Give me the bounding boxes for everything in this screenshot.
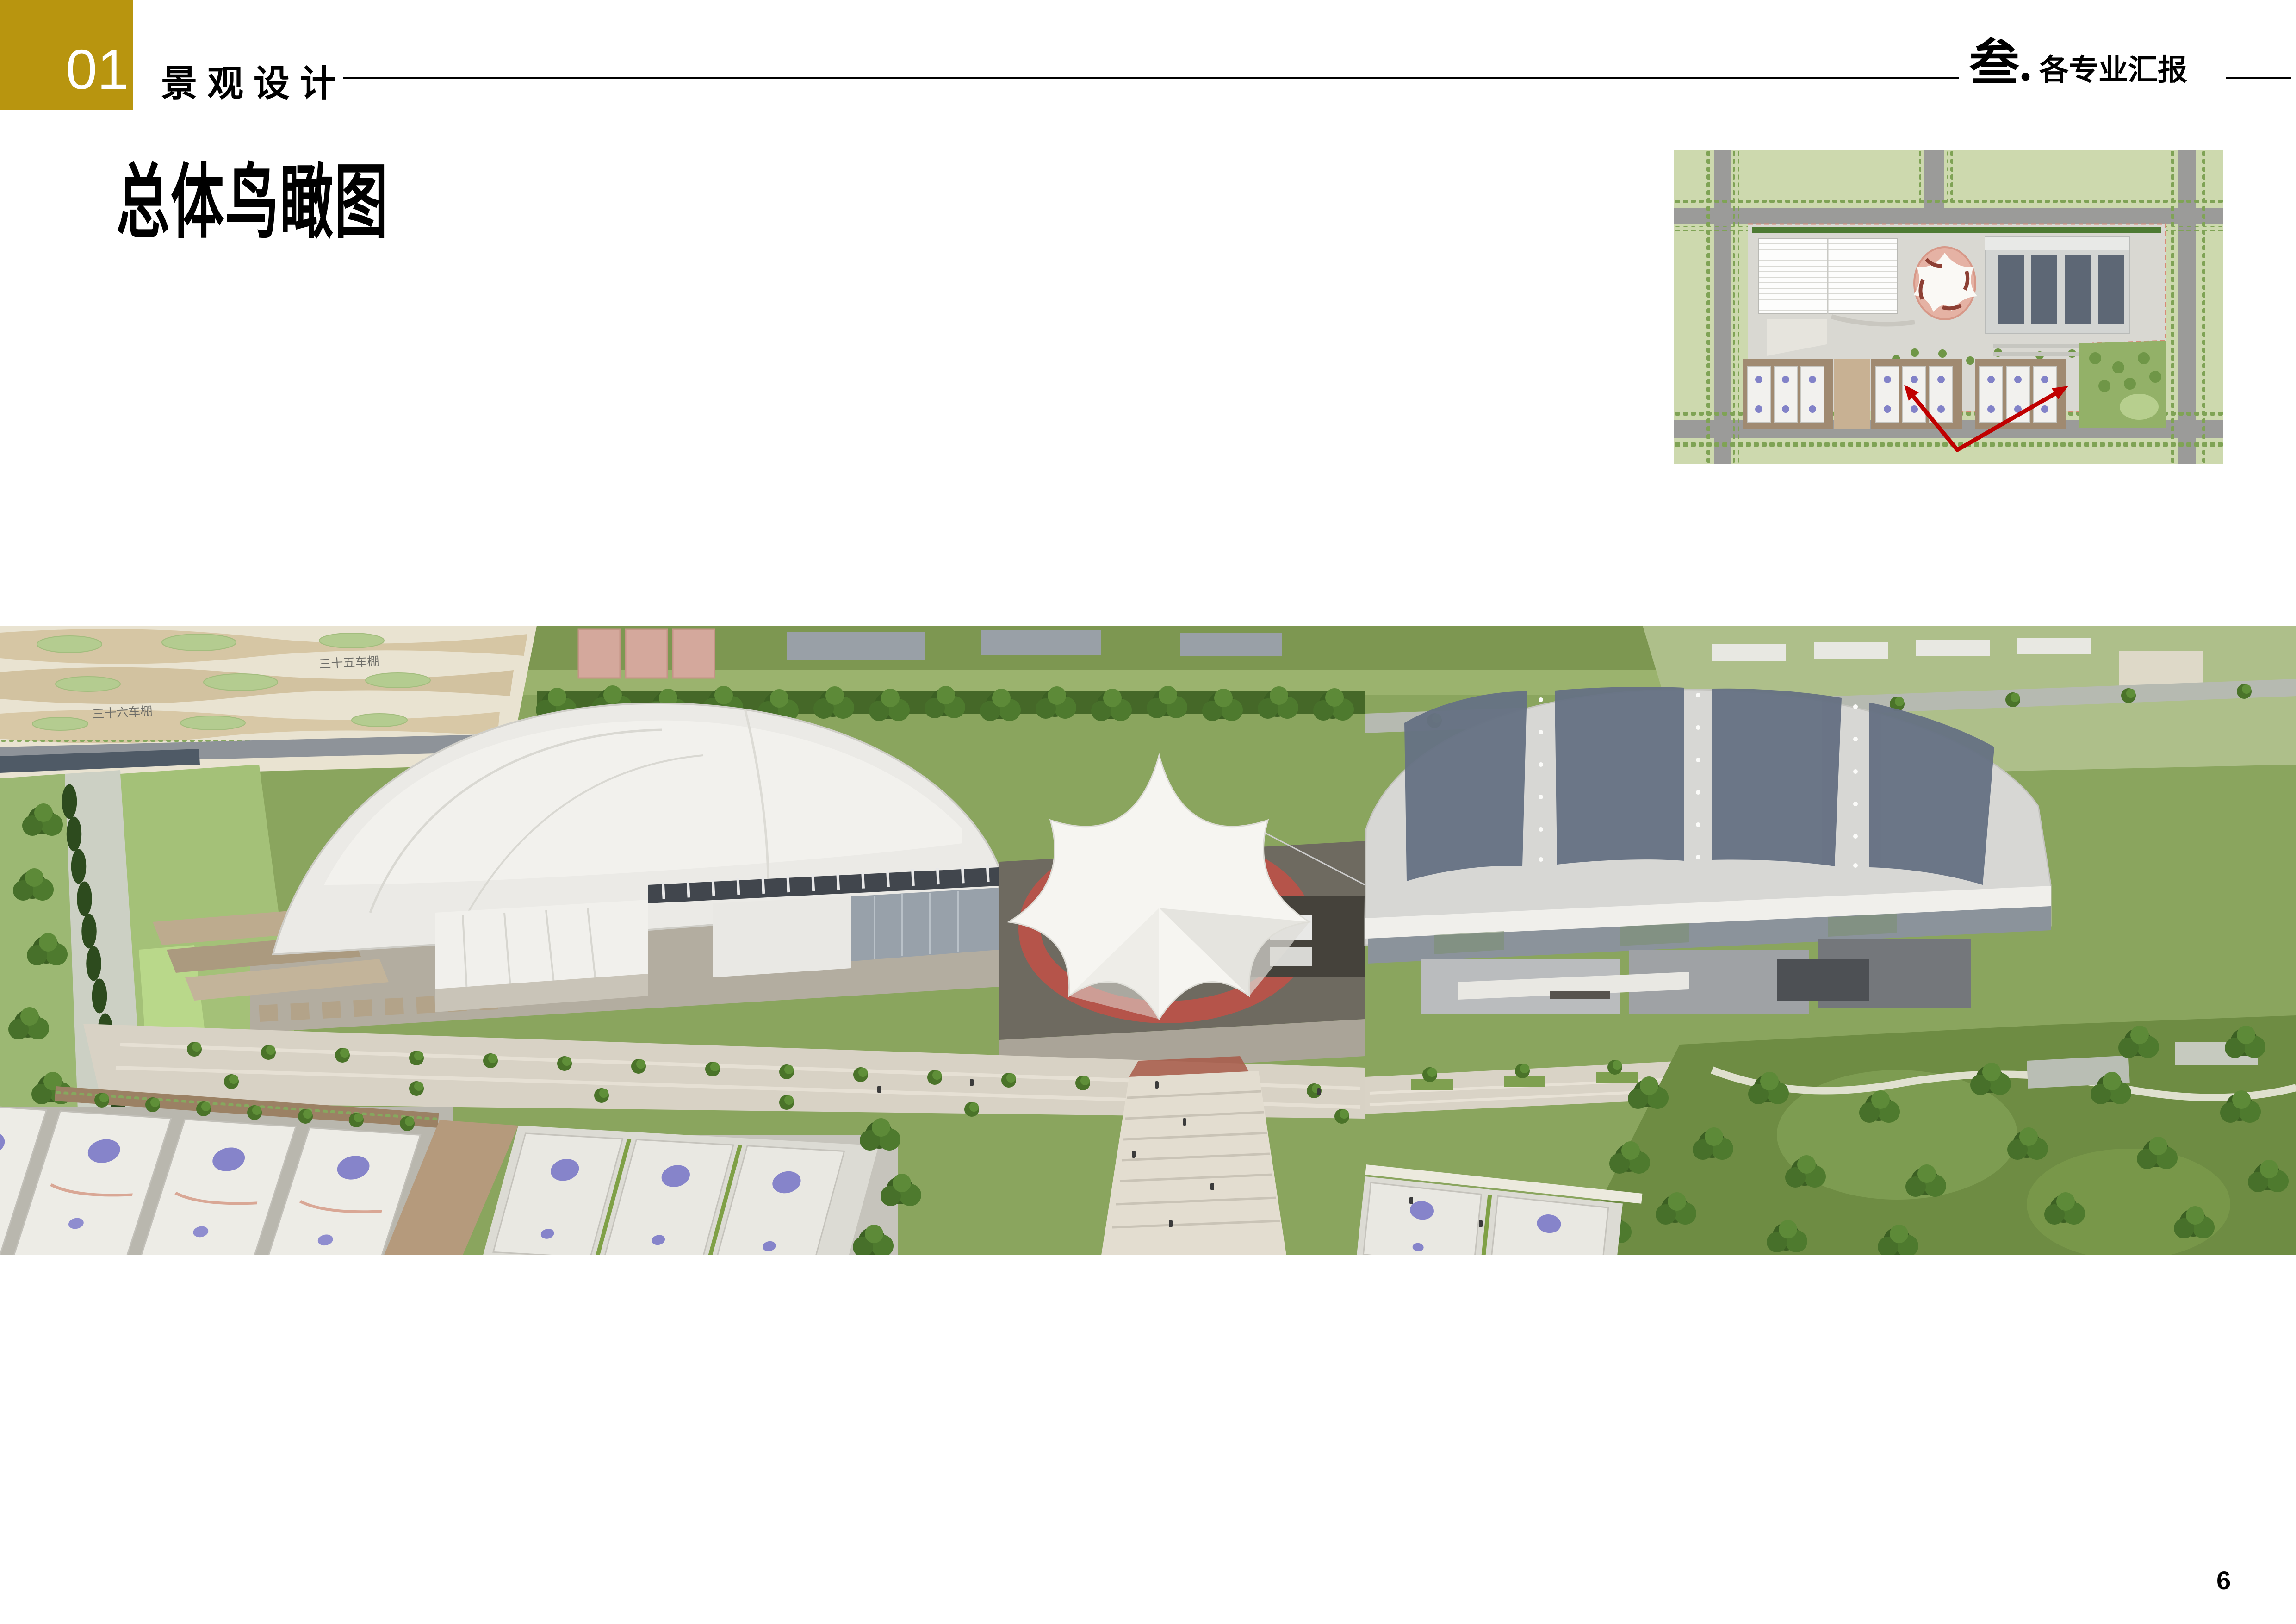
tennis-courts-center (482, 1118, 921, 1255)
right-park (1573, 1015, 2296, 1255)
keymap-courts (1743, 359, 2066, 429)
section-number: 01 (66, 41, 129, 98)
chapter-index: 叁. (1969, 39, 2032, 89)
header-divider-line (343, 77, 1959, 79)
slide: 01 景观设计 叁. 各专业汇报 总体鸟瞰图 (0, 0, 2296, 1624)
tennis-courts-left (0, 1086, 453, 1255)
site-plan-map (1674, 150, 2223, 464)
page-number: 6 (2216, 1565, 2231, 1595)
keymap-stadium (1913, 247, 1977, 319)
keymap-illustration (1674, 150, 2223, 464)
site-plan-inset (1674, 150, 2223, 464)
aerial-render: 三十五车棚 三十六车棚 (0, 626, 2296, 1255)
aerial-render-illustration: 三十五车棚 三十六车棚 (0, 626, 2296, 1255)
page-title: 总体鸟瞰图 (116, 161, 389, 247)
keymap-hall (1985, 237, 2129, 333)
right-hall-building (1365, 687, 2051, 1014)
header-divider-line-right (2226, 77, 2291, 79)
keymap-park (2079, 341, 2166, 428)
chapter-marker: 叁. 各专业汇报 (1969, 39, 2187, 89)
section-number-block: 01 (0, 0, 133, 110)
chapter-label: 各专业汇报 (2039, 56, 2187, 85)
section-title: 景观设计 (161, 55, 346, 106)
